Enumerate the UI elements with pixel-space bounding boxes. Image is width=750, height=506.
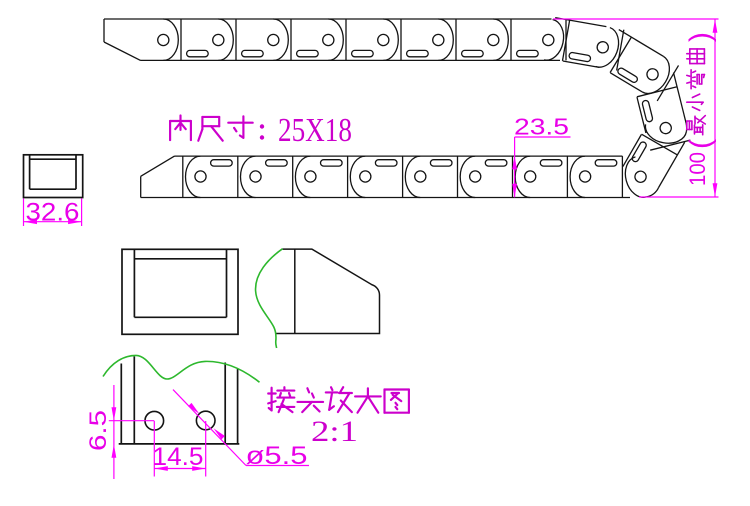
svg-text:14.5: 14.5 — [153, 443, 204, 471]
svg-text:2:1: 2:1 — [311, 415, 358, 448]
svg-text:25X18: 25X18 — [278, 112, 352, 149]
svg-text:): ) — [684, 32, 717, 42]
svg-text:(: ( — [684, 139, 717, 149]
svg-text:23.5: 23.5 — [514, 114, 569, 140]
svg-text:6.5: 6.5 — [85, 410, 112, 451]
svg-text:32.6: 32.6 — [26, 199, 80, 227]
svg-text:ø5.5: ø5.5 — [246, 442, 308, 470]
svg-text:100: 100 — [685, 152, 710, 186]
